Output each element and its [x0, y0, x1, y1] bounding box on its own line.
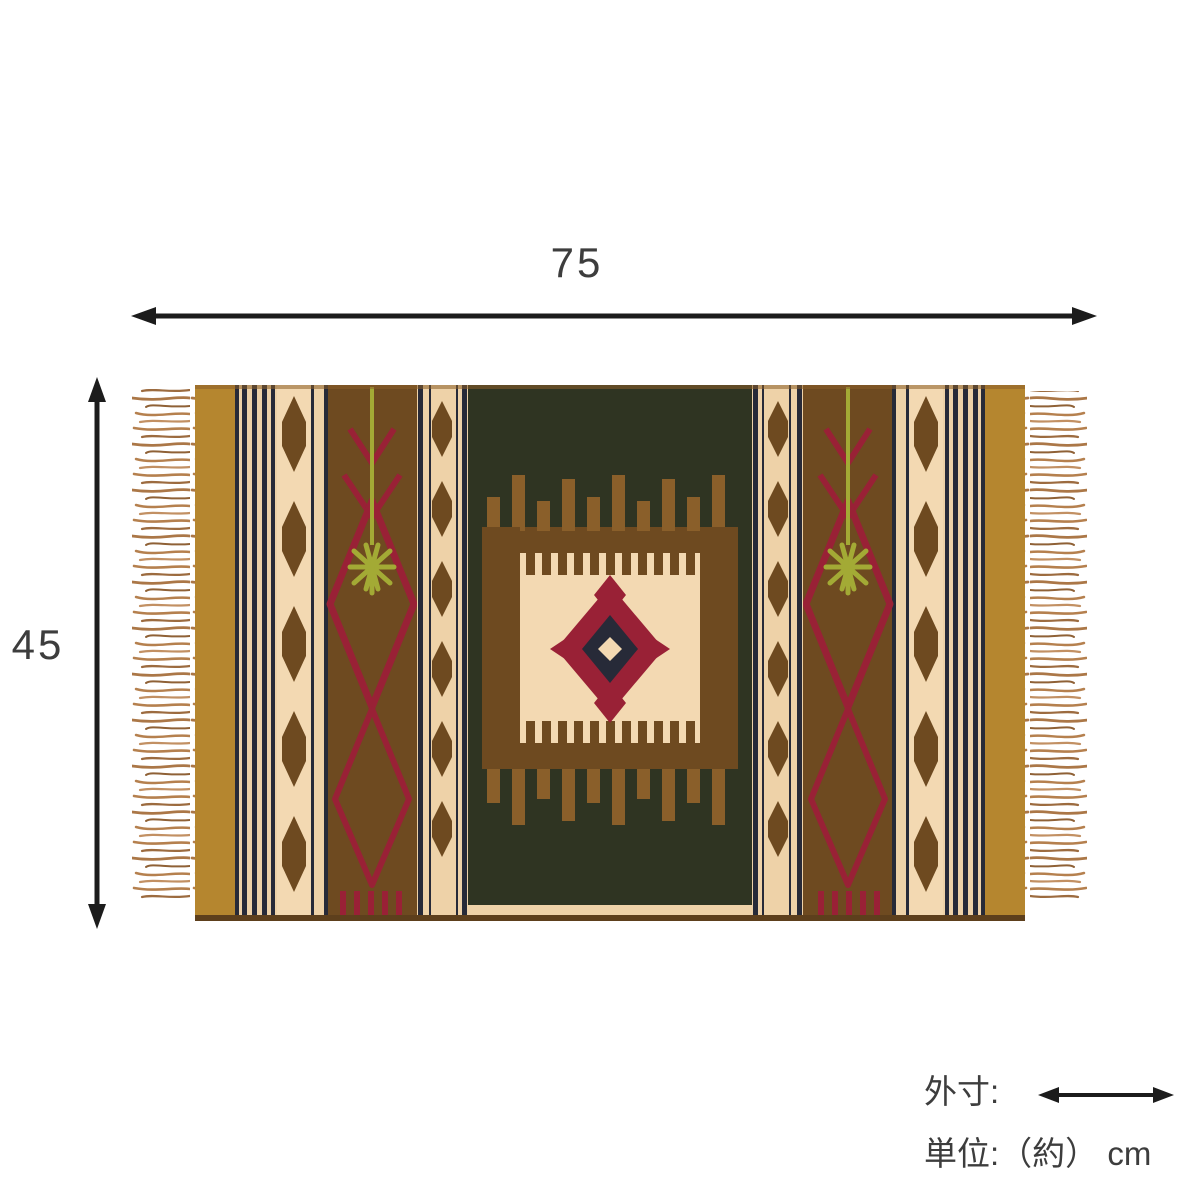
height-dimension-label: 45: [12, 624, 65, 666]
height-arrow-icon: [84, 374, 110, 932]
width-dimension-label: 75: [551, 242, 604, 284]
legend-arrow-icon: [1036, 1082, 1176, 1108]
legend-outer-dimension-label: 外寸:: [924, 1074, 999, 1110]
product-dimension-diagram: 75 45: [0, 0, 1200, 1200]
legend-unit-label: 単位:（約） cm: [924, 1136, 1151, 1172]
kilim-rug-image: [130, 378, 1110, 928]
width-arrow-icon: [128, 303, 1100, 329]
